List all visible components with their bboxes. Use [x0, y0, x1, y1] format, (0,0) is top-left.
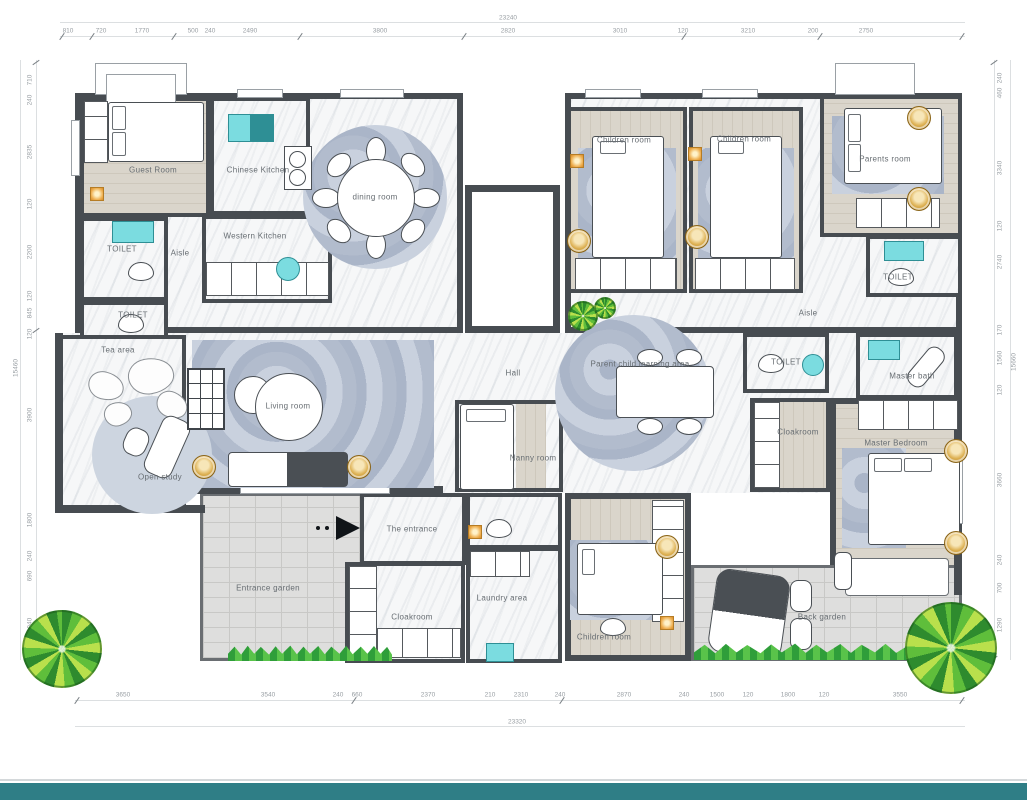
dim-bottom: 1800: [781, 692, 795, 699]
pillow: [848, 114, 861, 142]
dim-left: 120: [27, 291, 34, 302]
room-entry-toilet: [466, 493, 562, 549]
dim-left: 3900: [27, 408, 34, 422]
dim-left: 120: [27, 329, 34, 340]
gold-lamp: [567, 229, 591, 253]
exterior-wall: [55, 333, 63, 513]
label-guest-room: Guest Room: [129, 166, 177, 175]
dim-right: 460: [997, 88, 1004, 99]
dim-left: 240: [27, 551, 34, 562]
pillow: [466, 409, 506, 422]
children-b-wardrobe: [695, 258, 795, 290]
bedroom-closet: [858, 400, 958, 430]
dim-left: 120: [27, 199, 34, 210]
dim-left: 2200: [27, 245, 34, 259]
label-cloakroom-bottom: Cloakroom: [391, 613, 432, 622]
label-laundry-area: Laundry area: [477, 594, 528, 603]
window: [340, 89, 404, 98]
dim-bottom: 2370: [421, 692, 435, 699]
dim-right: 1560: [997, 351, 1004, 365]
children-a-bed: [592, 136, 664, 258]
dim-left: 240: [27, 95, 34, 106]
gold-lamp: [944, 439, 968, 463]
dining-chair: [312, 188, 340, 208]
dim-top: 240: [205, 28, 216, 35]
label-master-bedroom: Master Bedroom: [864, 439, 927, 448]
gold-lamp: [685, 225, 709, 249]
guest-cabinet: [84, 101, 108, 163]
gold-side-table: [347, 455, 371, 479]
label-dining-room: dining room: [352, 193, 397, 202]
label-parents-room: Parents room: [859, 155, 911, 164]
dim-top: 120: [678, 28, 689, 35]
tree: [22, 610, 102, 688]
dim-top: 2750: [859, 28, 873, 35]
laundry-counter: [470, 551, 530, 577]
bedroom-bench: [834, 552, 852, 590]
label-children-c: Children room: [577, 633, 631, 642]
dim-right: 700: [997, 583, 1004, 594]
dim-top: 3010: [613, 28, 627, 35]
dim-left: 690: [27, 571, 34, 582]
dim-right: 1290: [997, 618, 1004, 632]
entry-dot: [316, 526, 320, 530]
dim-bottom: 120: [743, 692, 754, 699]
dim-top: 200: [808, 28, 819, 35]
wall-light: [688, 147, 702, 161]
dim-line-bottom-total: [75, 726, 965, 727]
label-western-kitchen: Western Kitchen: [223, 232, 286, 241]
pillow: [582, 549, 595, 575]
dim-right: 2740: [997, 255, 1004, 269]
burner: [289, 169, 306, 186]
dim-left: 710: [27, 75, 34, 86]
dim-line-top: [60, 36, 965, 37]
label-chinese-kitchen: Chinese Kitchen: [227, 166, 290, 175]
dim-bottom: 1500: [710, 692, 724, 699]
kitchen-counter: [206, 262, 329, 296]
label-living-room: Living room: [266, 402, 311, 411]
garden-daybed: [845, 558, 949, 596]
dim-bottom: 3650: [116, 692, 130, 699]
dim-line-bottom: [75, 700, 965, 701]
garden-table: [790, 580, 812, 612]
label-aisle-right: Aisle: [799, 309, 818, 318]
dim-bottom: 2310: [514, 692, 528, 699]
dim-right: 3660: [997, 473, 1004, 487]
toilet-bowl: [486, 519, 512, 538]
dim-top-total: 23240: [499, 15, 517, 22]
dim-bottom-total: 23320: [508, 719, 526, 726]
cloakroom-shelves: [349, 566, 377, 658]
bathroom-sink: [884, 241, 924, 261]
learning-chair: [676, 418, 702, 435]
round-sink: [276, 257, 300, 281]
floor-plan-canvas: 23240 810 720 1770 500 240 2490 3800 282…: [0, 0, 1027, 800]
label-nanny-room: Nanny room: [510, 454, 557, 463]
dim-bottom: 240: [679, 692, 690, 699]
label-learning-area: Parent child learning area: [591, 360, 690, 369]
dim-bottom: 210: [485, 692, 496, 699]
label-toilet-top-right: TOILET: [883, 273, 913, 282]
shrub: [594, 297, 616, 319]
nanny-wood-strip: [516, 404, 546, 488]
dim-line-right: [994, 60, 995, 660]
dim-line-left-total: [20, 60, 21, 660]
dim-right: 170: [997, 325, 1004, 336]
label-toilet-b: TOILET: [118, 311, 148, 320]
kitchen-sink: [228, 114, 274, 142]
burner: [289, 151, 306, 168]
bookshelf: [187, 368, 225, 430]
dim-top: 1770: [135, 28, 149, 35]
dim-bottom: 120: [819, 692, 830, 699]
bay-window-inner: [106, 74, 176, 104]
tree: [905, 602, 997, 694]
window: [71, 120, 80, 176]
dim-top: 3800: [373, 28, 387, 35]
gold-side-table: [192, 455, 216, 479]
footer-divider: [0, 779, 1027, 781]
sofa: [228, 452, 348, 487]
dim-right: 120: [997, 221, 1004, 232]
dim-bottom: 240: [333, 692, 344, 699]
label-open-study: Open study: [138, 473, 182, 482]
toilet-bowl: [128, 262, 154, 281]
learning-table: [616, 366, 714, 418]
wall-light: [468, 525, 482, 539]
label-children-a: Children room: [597, 136, 651, 145]
dim-bottom: 2870: [617, 692, 631, 699]
label-the-entrance: The entrance: [387, 525, 438, 534]
label-children-b: Children room: [717, 135, 771, 144]
pillow: [112, 106, 126, 130]
dim-top: 500: [188, 28, 199, 35]
gold-lamp: [907, 106, 931, 130]
dim-top: 720: [96, 28, 107, 35]
window: [237, 89, 283, 98]
gold-lamp: [655, 535, 679, 559]
label-aisle-left: Aisle: [171, 249, 190, 258]
dim-left: 845: [27, 308, 34, 319]
entry-dot: [325, 526, 329, 530]
children-b-bed: [710, 136, 782, 258]
label-cloakroom-right: Cloakroom: [777, 428, 818, 437]
children-a-wardrobe: [575, 258, 677, 290]
pillow: [904, 458, 932, 472]
label-master-bath: Master bath: [889, 372, 935, 381]
bidet: [802, 354, 824, 376]
dim-left: 2835: [27, 145, 34, 159]
dim-top: 2820: [501, 28, 515, 35]
entry-arrow-icon: [336, 516, 360, 540]
wall-light: [570, 154, 584, 168]
label-toilet-a: TOILET: [107, 245, 137, 254]
courtyard-void: [465, 185, 560, 333]
dim-right: 120: [997, 385, 1004, 396]
cloakroom-shelves: [754, 402, 780, 488]
dining-chair: [412, 188, 440, 208]
wall-light: [90, 187, 104, 201]
dim-bottom: 3550: [893, 692, 907, 699]
learning-chair: [637, 418, 663, 435]
dim-left: 1800: [27, 513, 34, 527]
dim-bottom: 660: [352, 692, 363, 699]
label-back-garden: Back garden: [798, 613, 846, 622]
dim-bottom: 240: [555, 692, 566, 699]
window: [585, 89, 641, 98]
label-entrance-garden: Entrance garden: [236, 584, 300, 593]
pillow: [112, 132, 126, 156]
dim-left-total: 15460: [13, 359, 20, 377]
bathroom-sink: [868, 340, 900, 360]
footer-teal-band: [0, 783, 1027, 800]
dim-top: 3210: [741, 28, 755, 35]
dim-bottom: 3540: [261, 692, 275, 699]
dim-right-total: 15660: [1011, 353, 1018, 371]
dim-top: 810: [63, 28, 74, 35]
pillow: [874, 458, 902, 472]
wall-light: [660, 616, 674, 630]
label-hall: Hall: [506, 369, 521, 378]
label-toilet-mid: TOILET: [771, 358, 801, 367]
gold-lamp: [907, 187, 931, 211]
bay-window: [835, 63, 915, 95]
label-tea-area: Tea area: [101, 346, 135, 355]
dim-right: 240: [997, 73, 1004, 84]
dim-line-top-total: [60, 22, 965, 23]
dim-right: 240: [997, 555, 1004, 566]
gold-lamp: [944, 531, 968, 555]
washer: [486, 643, 514, 662]
window: [702, 89, 758, 98]
dim-right: 3340: [997, 161, 1004, 175]
dim-top: 2490: [243, 28, 257, 35]
bathroom-sink: [112, 221, 154, 243]
dim-line-left: [36, 60, 37, 660]
